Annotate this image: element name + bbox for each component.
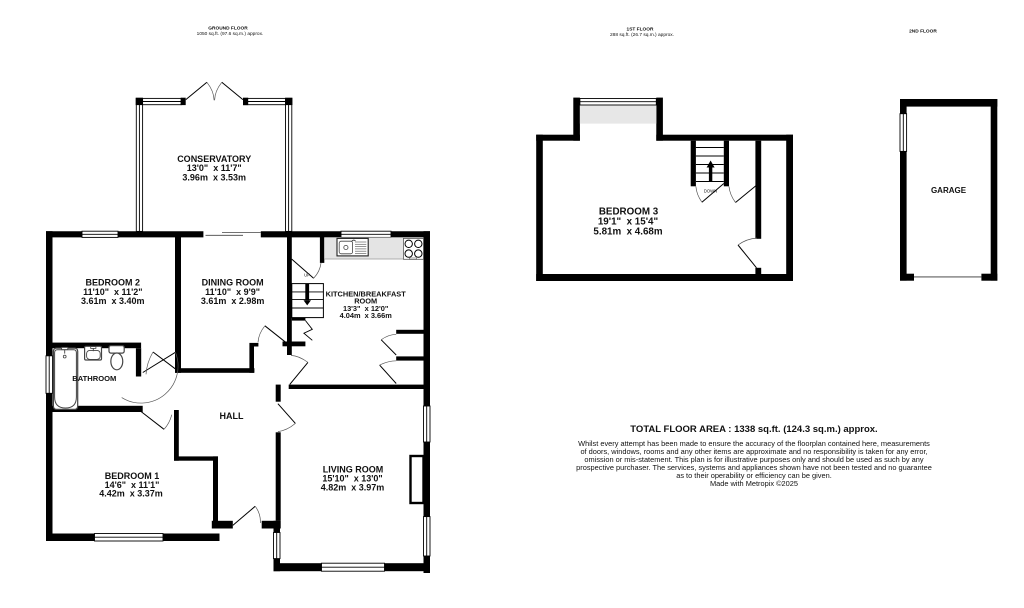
svg-text:Made with Metropix ©2025: Made with Metropix ©2025 bbox=[710, 479, 798, 488]
svg-text:5.81m x 4.68m: 5.81m x 4.68m bbox=[593, 227, 662, 238]
svg-text:GROUND FLOOR: GROUND FLOOR bbox=[208, 26, 248, 32]
svg-text:3.61m x 2.98m: 3.61m x 2.98m bbox=[201, 296, 265, 306]
svg-text:3.96m x 3.53m: 3.96m x 3.53m bbox=[182, 173, 246, 183]
svg-text:2ND FLOOR: 2ND FLOOR bbox=[909, 29, 937, 35]
svg-text:4.42m x 3.37m: 4.42m x 3.37m bbox=[99, 489, 163, 499]
svg-text:GARAGE: GARAGE bbox=[931, 186, 967, 195]
svg-text:HALL: HALL bbox=[220, 411, 244, 421]
svg-text:4.04m x 3.66m: 4.04m x 3.66m bbox=[340, 311, 393, 320]
svg-text:BATHROOM: BATHROOM bbox=[72, 374, 116, 383]
svg-text:1ST FLOOR: 1ST FLOOR bbox=[627, 27, 654, 33]
svg-text:TOTAL FLOOR AREA : 1338 sq.ft.: TOTAL FLOOR AREA : 1338 sq.ft. (124.3 sq… bbox=[630, 424, 877, 435]
svg-text:4.82m x 3.97m: 4.82m x 3.97m bbox=[321, 483, 385, 493]
svg-text:288 sq.ft. (26.7 sq.m.) approx: 288 sq.ft. (26.7 sq.m.) approx. bbox=[610, 32, 674, 38]
svg-text:1050 sq.ft. (97.6 sq.m.) appro: 1050 sq.ft. (97.6 sq.m.) approx. bbox=[197, 31, 264, 37]
svg-text:3.61m x 3.40m: 3.61m x 3.40m bbox=[81, 296, 145, 306]
svg-text:UP: UP bbox=[304, 272, 310, 277]
